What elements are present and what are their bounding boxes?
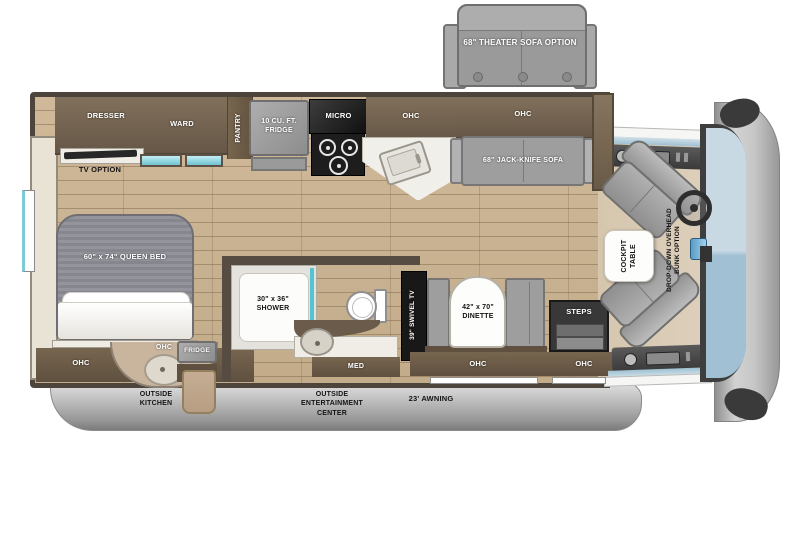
shower-label: 30" x 36" SHOWER: [245, 290, 301, 318]
queen-bed: [56, 214, 194, 340]
ward-window-right: [185, 154, 223, 167]
tv-option-label: TV OPTION: [58, 164, 142, 176]
cockpit-table-label: COCKPIT TABLE: [620, 233, 638, 279]
kitchen-fridge-label: 10 CU. FT. FRIDGE: [254, 112, 304, 142]
ward-window-left: [140, 154, 182, 167]
vanity-sink-drain: [315, 341, 320, 346]
swivel-tv-label: 39" SWIVEL TV: [402, 273, 424, 357]
dinette-bench-right: [505, 278, 545, 348]
dash-gauge: [624, 353, 637, 366]
bed-blanket: [58, 302, 192, 339]
cooktop: [311, 133, 365, 176]
toilet-seat: [352, 297, 373, 318]
bedroom-ohc-label: OHC: [60, 357, 102, 369]
steps-label: STEPS: [552, 306, 606, 318]
outside-fridge-label: FRIDGE: [177, 346, 217, 357]
vanity-sink: [300, 328, 334, 356]
dash-knob: [686, 352, 690, 361]
bedroom-window: [22, 190, 35, 272]
cooktop-burner: [319, 139, 336, 156]
dinette-bench-back-line: [529, 282, 530, 344]
theater-sofa-back: [459, 6, 585, 31]
cooktop-burner: [329, 156, 348, 175]
dash-knob: [684, 153, 688, 162]
pantry-label: PANTRY: [226, 99, 252, 157]
dinette-window-strip: [430, 377, 538, 384]
kitchen-fridge-drawer: [251, 157, 307, 171]
steering-wheel: [676, 190, 712, 226]
sofa-ohc-label: OHC: [490, 108, 556, 120]
dresser-label: DRESSER: [62, 110, 150, 122]
theater-sofa-foot: [562, 72, 572, 82]
steps-ohc-label: OHC: [562, 358, 606, 370]
theater-sofa-foot: [518, 72, 528, 82]
windshield: [706, 128, 746, 378]
outside-kitchen-door: [182, 370, 216, 414]
kitchen-ohc-label: OHC: [378, 110, 444, 122]
jack-knife-sofa-label: 68" JACK-KNIFE SOFA: [460, 155, 586, 167]
rv-floorplan: 68" THEATER SOFA OPTION OUTSIDE KITCHEN …: [0, 0, 800, 545]
dinette-label: 42" x 70" DINETTE: [453, 298, 503, 326]
microwave-label: MICRO: [309, 110, 368, 122]
awning-label: 23' AWNING: [396, 393, 466, 405]
kitchen-sink-basin: [386, 148, 421, 176]
step-tread: [556, 324, 604, 337]
entry-door-strip: [552, 377, 606, 384]
bath-wall-top: [222, 256, 420, 265]
dinette-ohc-label: OHC: [456, 358, 500, 370]
cooktop-burner: [341, 139, 358, 156]
dash-knob: [676, 153, 680, 162]
med-label: MED: [330, 361, 382, 373]
queen-bed-label: 60" x 74" QUEEN BED: [80, 244, 170, 270]
cockpit-table: COCKPIT TABLE: [604, 230, 654, 282]
dinette-bench-left: [427, 278, 450, 348]
outside-entertainment-label: OUTSIDE ENTERTAINMENT CENTER: [290, 386, 374, 422]
ward-label: WARD: [147, 118, 217, 130]
step-tread: [556, 337, 604, 350]
windshield-divider: [700, 246, 712, 262]
theater-sofa-option: 68" THEATER SOFA OPTION: [443, 4, 597, 87]
theater-sofa-label: 68" THEATER SOFA OPTION: [453, 36, 587, 50]
outside-sink-drain: [160, 367, 165, 372]
theater-sofa-foot: [473, 72, 483, 82]
steering-hub: [690, 204, 698, 212]
toilet-bowl: [346, 291, 377, 322]
bath-wall-left: [222, 256, 231, 382]
dash-display: [646, 351, 680, 365]
outside-kitchen-label: OUTSIDE KITCHEN: [126, 386, 186, 412]
